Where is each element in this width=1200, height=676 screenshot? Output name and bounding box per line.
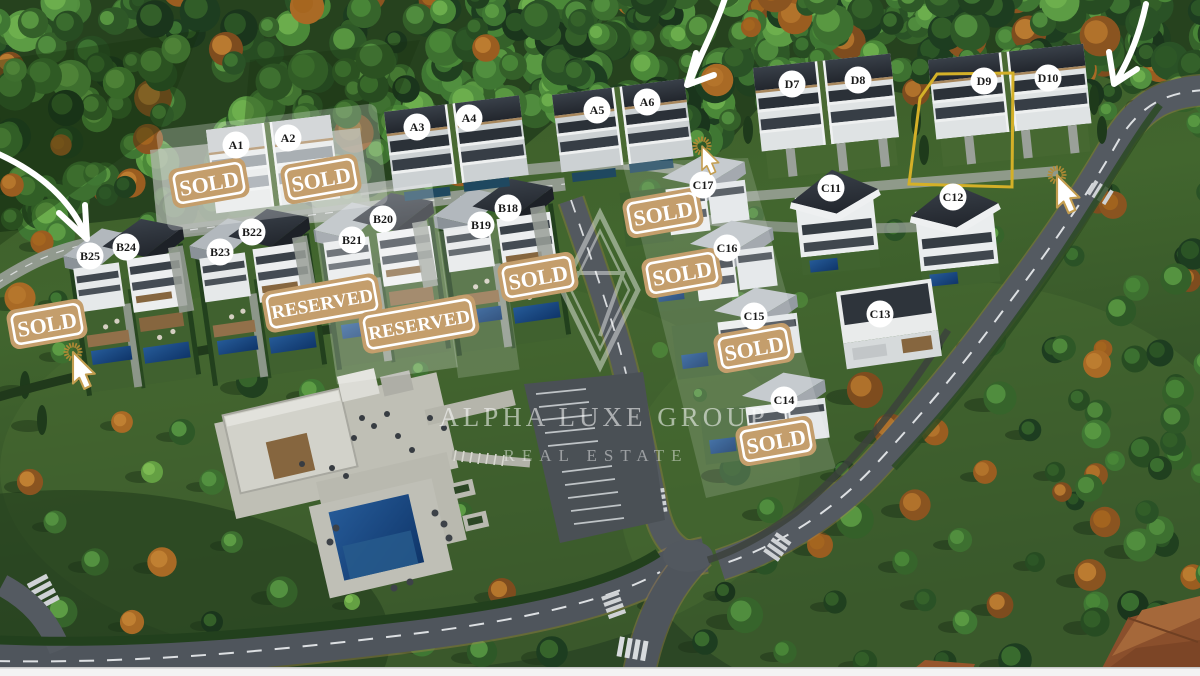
svg-text:A6: A6	[640, 95, 655, 109]
svg-text:D9: D9	[977, 74, 992, 88]
svg-text:B20: B20	[373, 212, 393, 226]
svg-text:C17: C17	[693, 178, 714, 192]
svg-text:C15: C15	[744, 309, 765, 323]
svg-text:B24: B24	[116, 240, 136, 254]
svg-text:A1: A1	[229, 138, 244, 152]
svg-text:A4: A4	[462, 111, 477, 125]
svg-text:B21: B21	[342, 233, 362, 247]
svg-text:REAL ESTATE: REAL ESTATE	[503, 446, 688, 465]
svg-text:B23: B23	[210, 245, 230, 259]
svg-text:C14: C14	[774, 393, 795, 407]
svg-text:ALPHA LUXE GROUP: ALPHA LUXE GROUP	[439, 402, 769, 432]
svg-text:C12: C12	[943, 190, 964, 204]
svg-text:B19: B19	[471, 218, 491, 232]
svg-text:B18: B18	[498, 201, 518, 215]
svg-text:D10: D10	[1038, 71, 1059, 85]
svg-text:D8: D8	[851, 73, 866, 87]
svg-text:B22: B22	[242, 225, 262, 239]
svg-text:D7: D7	[785, 77, 800, 91]
svg-text:A2: A2	[281, 131, 296, 145]
svg-text:A3: A3	[410, 120, 425, 134]
svg-text:B25: B25	[80, 249, 100, 263]
svg-text:C16: C16	[717, 241, 738, 255]
svg-text:A5: A5	[590, 103, 605, 117]
svg-text:C11: C11	[821, 181, 841, 195]
svg-text:C13: C13	[870, 307, 891, 321]
